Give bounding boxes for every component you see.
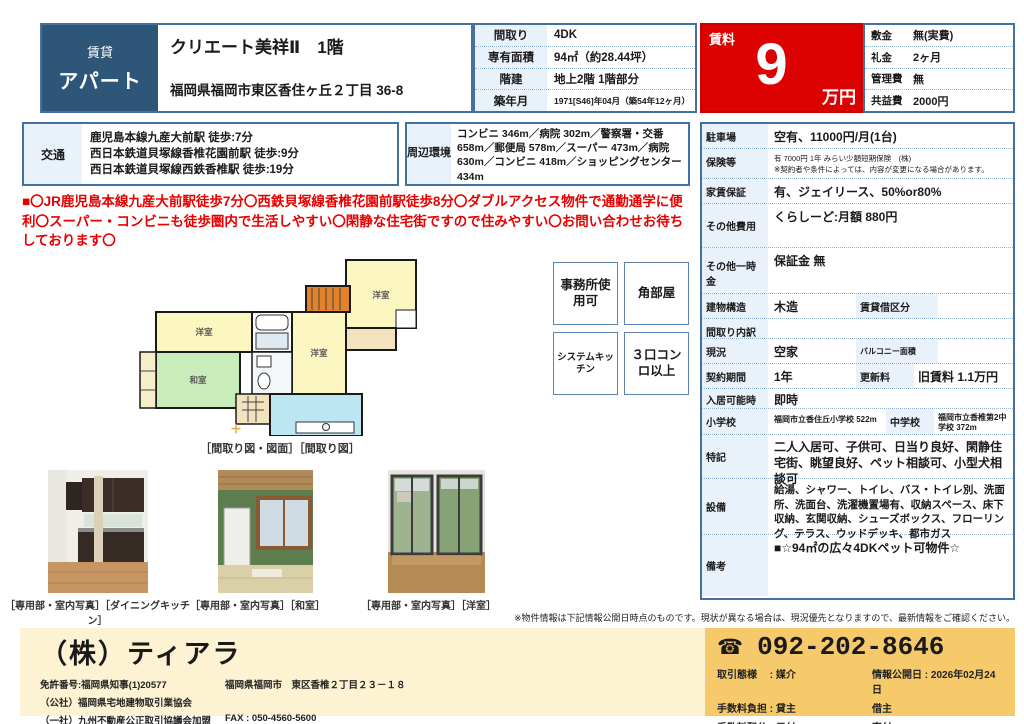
row-value: 給湯、シャワー、トイレ、バス・トイレ別、洗面所、洗面台、洗濯機置場有、収納スペー…	[768, 479, 1013, 534]
row-label: 小学校	[702, 409, 768, 434]
surroundings-text: コンビニ 346m／病院 302m／警察署・交番 658m／郵便局 578m／ス…	[451, 124, 688, 184]
spacer	[225, 695, 705, 709]
plus-mark: ＋	[230, 420, 242, 437]
row-sub-value	[938, 294, 1013, 318]
row-value: 1年	[768, 364, 856, 388]
insurance-line2: ※契約者や条件によっては、内容が変更になる場合があります。	[774, 164, 1007, 175]
row-sub-label: 更新料	[856, 364, 914, 388]
office-address: 福岡県福岡市 東区香椎２丁目２３－１８	[225, 677, 705, 691]
spec-table: 間取り 4DK 専有面積 94㎡（約28.44坪） 階建 地上2階 1階部分 築…	[473, 23, 697, 113]
row-school: 小学校 福岡市立香住丘小学校 522m 中学校 福岡市立香椎第2中学校 372m	[702, 409, 1013, 435]
spec-value: 4DK	[547, 29, 695, 41]
row-value: 保証金 無	[768, 248, 1013, 293]
photo-caption: ［専用部・室内写真］［和室］	[160, 597, 355, 612]
floor-plan-caption: ［間取り図・図面］［間取り図］	[0, 440, 560, 456]
row-remarks: 備考 ■☆94㎡の広々4DKペット可物件☆	[702, 535, 1013, 596]
floorplan-room-label: 和室	[189, 375, 207, 385]
fee-row-deposit: 敷金 無(実費)	[865, 25, 1013, 47]
row-label: 備考	[702, 535, 768, 596]
fee-burden: 手数料負担 : 貸主	[717, 700, 872, 715]
spec-row-area: 専有面積 94㎡（約28.44坪）	[475, 47, 695, 69]
row-status: 現況 空家 バルコニー面積	[702, 339, 1013, 364]
floor-plan-svg: 洋室 洋室 洋室 和室	[100, 252, 440, 436]
row-move-in: 入居可能時期 即時	[702, 389, 1013, 409]
property-address: 福岡県福岡市東区香住ヶ丘２丁目 36-8	[170, 79, 459, 103]
pr-text: ■〇JR鹿児島本線九産大前駅徒歩7分〇西鉄貝塚線香椎花園前駅徒歩8分〇ダブルアク…	[22, 192, 692, 251]
row-value: 即時	[768, 389, 1013, 408]
surroundings-table: 周辺環境 コンビニ 346m／病院 302m／警察署・交番 658m／郵便局 5…	[405, 122, 690, 186]
row-value: 木造	[768, 294, 856, 318]
row-parking: 駐車場 空有、11000円/月(1台)	[702, 124, 1013, 149]
transaction-type: 取引態様 : 媒介	[717, 666, 872, 696]
category-top: 賃貸	[87, 42, 113, 61]
row-value: 有 7000円 1年 みらい少額短期保険 (株) ※契約者や条件によっては、内容…	[768, 149, 1013, 178]
photo-japanese-room-image	[218, 470, 313, 593]
row-label: その他費用	[702, 204, 768, 247]
category-main: アパート	[58, 65, 142, 94]
phone-icon: ☎	[717, 635, 743, 660]
row-value: くらしーど:月額 880円	[768, 204, 1013, 247]
row-other-onetime: その他一時金 保証金 無	[702, 248, 1013, 294]
access-line: 鹿児島本線九産大前駅 徒歩:7分	[90, 130, 389, 146]
fee-row-common: 共益費 2000円	[865, 90, 1013, 111]
fee-split: 手数料配分 : 元付	[717, 719, 872, 724]
access-lines: 鹿児島本線九産大前駅 徒歩:7分 西日本鉄道貝塚線香椎花園前駅 徒歩:9分 西日…	[82, 124, 397, 184]
spec-label: 専有面積	[475, 47, 547, 68]
fee-label: 敷金	[865, 28, 913, 43]
fee-value: 2000円	[913, 93, 1013, 109]
row-notes: 特記 二人入居可、子供可、日当り良好、閑静住宅街、眺望良好、ペット相談可、小型犬…	[702, 435, 1013, 479]
rent-amount: 9	[702, 33, 841, 97]
fee-value: 無(実費)	[913, 27, 1013, 43]
row-value: 空家	[768, 339, 856, 363]
floorplan-room-label: 洋室	[372, 290, 390, 300]
access-line: 西日本鉄道貝塚線香椎花園前駅 徒歩:9分	[90, 146, 389, 162]
row-value: 二人入居可、子供可、日当り良好、閑静住宅街、眺望良好、ペット相談可、小型犬相談可	[768, 435, 1013, 478]
company-name: （株）ティアラ	[40, 632, 705, 671]
access-label: 交通	[24, 124, 82, 184]
spec-row-floors: 階建 地上2階 1階部分	[475, 69, 695, 91]
category-badge: 賃貸 アパート	[42, 25, 158, 111]
details-table: 駐車場 空有、11000円/月(1台) 保険等 有 7000円 1年 みらい少額…	[700, 122, 1015, 600]
row-sub-value	[938, 339, 1013, 363]
row-label: 設備	[702, 479, 768, 534]
row-sub-label: バルコニー面積	[856, 339, 938, 363]
row-sub-label: 中学校	[886, 409, 934, 434]
badge-three-burner: ３口コンロ以上	[624, 332, 689, 395]
row-value	[768, 319, 1013, 338]
footer-company-block: （株）ティアラ 免許番号:福岡県知事(1)20577 福岡県福岡市 東区香椎２丁…	[20, 628, 705, 716]
property-flyer: 賃貸 アパート クリエート美祥Ⅱ 1階 福岡県福岡市東区香住ヶ丘２丁目 36-8…	[0, 0, 1024, 724]
row-value: ■☆94㎡の広々4DKペット可物件☆	[768, 535, 1013, 596]
spec-label: 築年月	[475, 90, 547, 111]
association-2: （一社）九州不動産公正取引協議会加盟	[40, 713, 225, 724]
spec-row-layout: 間取り 4DK	[475, 25, 695, 47]
row-layout-detail: 間取り内訳	[702, 319, 1013, 339]
row-insurance: 保険等 有 7000円 1年 みらい少額短期保険 (株) ※契約者や条件によって…	[702, 149, 1013, 179]
row-label: 間取り内訳	[702, 319, 768, 338]
spec-value: 1971[S46]年04月（築54年12ヶ月）	[547, 95, 695, 107]
photo-caption: ［専用部・室内写真］［洋室］	[330, 597, 527, 612]
floorplan-room-label: 洋室	[195, 327, 213, 337]
insurance-line1: 有 7000円 1年 みらい少額短期保険 (株)	[774, 153, 1007, 164]
row-value: 空有、11000円/月(1台)	[768, 124, 1013, 148]
fax-number: FAX : 050-4560-5600	[225, 713, 705, 724]
row-label: 現況	[702, 339, 768, 363]
property-title: クリエート美祥Ⅱ 1階	[170, 33, 459, 58]
fee-value: 無	[913, 71, 1013, 87]
row-value: 有、ジェイリース、50%or80%	[768, 179, 1013, 203]
row-contract: 契約期間 1年 更新料 旧賃料 1.1万円	[702, 364, 1013, 389]
spec-value: 地上2階 1階部分	[547, 71, 695, 87]
floorplan-room-label: 洋室	[310, 348, 328, 358]
title-block: クリエート美祥Ⅱ 1階 福岡県福岡市東区香住ヶ丘２丁目 36-8	[158, 25, 471, 111]
footer-contact-block: ☎ 092-202-8646 取引態様 : 媒介 情報公開日 : 2026年02…	[705, 628, 1015, 716]
row-label: 契約期間	[702, 364, 768, 388]
fee-label: 礼金	[865, 50, 913, 65]
rent-unit: 万円	[822, 83, 856, 108]
fee-split-right: 客付	[872, 719, 1003, 724]
row-value: 福岡市立香住丘小学校 522m	[768, 409, 886, 434]
row-sub-label: 賃貸借区分	[856, 294, 938, 318]
company-info-grid: 免許番号:福岡県知事(1)20577 福岡県福岡市 東区香椎２丁目２３－１８ （…	[40, 677, 705, 724]
row-label: 駐車場	[702, 124, 768, 148]
row-sub-value: 福岡市立香椎第2中学校 372m	[934, 409, 1013, 434]
spec-label: 間取り	[475, 25, 547, 46]
access-line: 西日本鉄道貝塚線西鉄香椎駅 徒歩:19分	[90, 162, 389, 178]
badge-corner-room: 角部屋	[624, 262, 689, 325]
fee-label: 管理費	[865, 71, 913, 86]
access-table: 交通 鹿児島本線九産大前駅 徒歩:7分 西日本鉄道貝塚線香椎花園前駅 徒歩:9分…	[22, 122, 399, 186]
fee-table: 敷金 無(実費) 礼金 2ヶ月 管理費 無 共益費 2000円	[863, 23, 1015, 113]
row-label: 保険等	[702, 149, 768, 178]
row-sub-value: 旧賃料 1.1万円	[914, 364, 1013, 388]
publish-date: 情報公開日 : 2026年02月24日	[872, 666, 1003, 696]
photo-dining-kitchen-image	[48, 470, 148, 593]
photo-western-room-image	[388, 470, 485, 593]
badge-office-use: 事務所使用可	[553, 262, 618, 325]
fee-label: 共益費	[865, 93, 913, 108]
fee-row-management: 管理費 無	[865, 69, 1013, 91]
association-1: （公社）福岡県宅地建物取引業協会	[40, 695, 225, 709]
fee-value: 2ヶ月	[913, 49, 1013, 65]
spec-value: 94㎡（約28.44坪）	[547, 49, 695, 65]
row-label: 家賃保証	[702, 179, 768, 203]
row-structure: 建物構造 木造 賃貸借区分	[702, 294, 1013, 319]
phone-row: ☎ 092-202-8646	[717, 632, 1003, 662]
row-label: その他一時金	[702, 248, 768, 293]
spec-row-built: 築年月 1971[S46]年04月（築54年12ヶ月）	[475, 90, 695, 111]
row-label: 入居可能時期	[702, 389, 768, 408]
fee-burden-right: 借主	[872, 700, 1003, 715]
license-number: 免許番号:福岡県知事(1)20577	[40, 677, 225, 691]
row-equipment: 設備 給湯、シャワー、トイレ、バス・トイレ別、洗面所、洗面台、洗濯機置場有、収納…	[702, 479, 1013, 535]
row-guarantee: 家賃保証 有、ジェイリース、50%or80%	[702, 179, 1013, 204]
disclaimer-text: ※物件情報は下記情報公開日時点のものです。現状が異なる場合は、現況優先となります…	[415, 611, 1015, 624]
rent-box: 賃料 9 万円	[700, 23, 863, 113]
transaction-info-grid: 取引態様 : 媒介 情報公開日 : 2026年02月24日 手数料負担 : 貸主…	[717, 666, 1003, 724]
row-label: 建物構造	[702, 294, 768, 318]
floor-plan-image: 洋室 洋室 洋室 和室	[100, 252, 440, 436]
badge-system-kitchen: システムキッチン	[553, 332, 618, 395]
fee-row-key-money: 礼金 2ヶ月	[865, 47, 1013, 69]
spec-label: 階建	[475, 69, 547, 90]
row-label: 特記	[702, 435, 768, 478]
row-other-fees: その他費用 くらしーど:月額 880円	[702, 204, 1013, 248]
surroundings-label: 周辺環境	[407, 124, 451, 184]
phone-number: 092-202-8646	[757, 632, 944, 662]
header-box: 賃貸 アパート クリエート美祥Ⅱ 1階 福岡県福岡市東区香住ヶ丘２丁目 36-8	[40, 23, 473, 113]
